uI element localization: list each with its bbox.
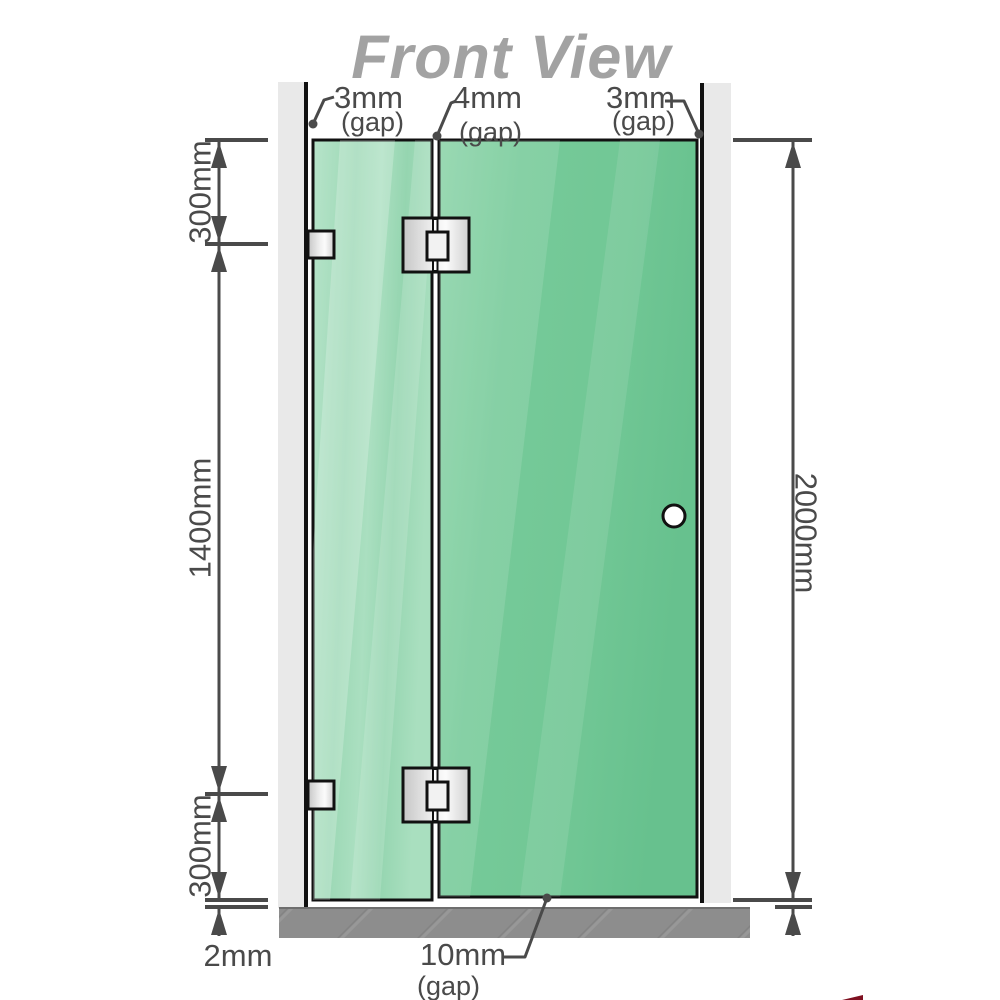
gap-callout-top-left: 3mm (gap): [309, 80, 405, 137]
right-wall-bar: [704, 83, 731, 903]
floor: [279, 908, 750, 938]
leader-dot-top-middle: [433, 132, 442, 141]
dim-label-300-bottom: 300mm: [183, 794, 218, 897]
left-wall: [278, 82, 308, 908]
hinge-bottom-center-tab: [427, 782, 448, 810]
door-knob: [663, 505, 685, 527]
right-wall: [700, 83, 731, 903]
hinge-top: [403, 218, 469, 272]
leader-dot-top-right: [695, 130, 704, 139]
arrow-up-4: [211, 909, 227, 935]
wall-bracket-top: [308, 231, 334, 258]
arrow-up-right-top: [785, 142, 801, 168]
dim-label-1400: 1400mm: [183, 458, 218, 579]
leader-top-left: [313, 97, 334, 124]
watermark-fragment: [842, 995, 863, 1000]
gap-suffix-top-left: (gap): [341, 107, 404, 137]
right-dimension: 2000mm: [733, 140, 824, 936]
hinge-bottom: [403, 768, 469, 822]
gap-value-top-middle: 4mm: [453, 80, 522, 115]
hinge-top-center-tab: [427, 232, 448, 260]
gap-callout-top-right: 3mm (gap): [606, 80, 704, 139]
wall-bracket-bottom: [308, 781, 334, 809]
gap-suffix-top-middle: (gap): [459, 117, 522, 147]
dim-label-2000: 2000mm: [789, 473, 824, 594]
gap-value-bottom: 10mm: [420, 937, 506, 972]
arrow-down-right-bottom: [785, 872, 801, 898]
arrow-up-right-floor: [785, 909, 801, 935]
dim-label-300-top: 300mm: [183, 140, 218, 243]
floor-hatching: [279, 908, 750, 938]
dim-label-2mm: 2mm: [204, 938, 273, 973]
front-view-diagram: Front View: [0, 0, 1000, 1000]
leader-dot-bottom: [543, 894, 552, 903]
arrow-down-2: [211, 766, 227, 792]
right-wall-inner-edge: [700, 83, 704, 903]
left-wall-bar: [278, 82, 304, 908]
hinged-glass-door: [439, 140, 697, 897]
diagram-canvas: Front View: [0, 0, 1000, 1000]
gap-suffix-top-right: (gap): [612, 106, 675, 136]
left-dimensions: 300mm 1400mm 300mm 2mm: [183, 140, 273, 973]
gap-suffix-bottom: (gap): [417, 971, 480, 1000]
leader-dot-top-left: [309, 120, 318, 129]
arrow-up-2: [211, 246, 227, 272]
